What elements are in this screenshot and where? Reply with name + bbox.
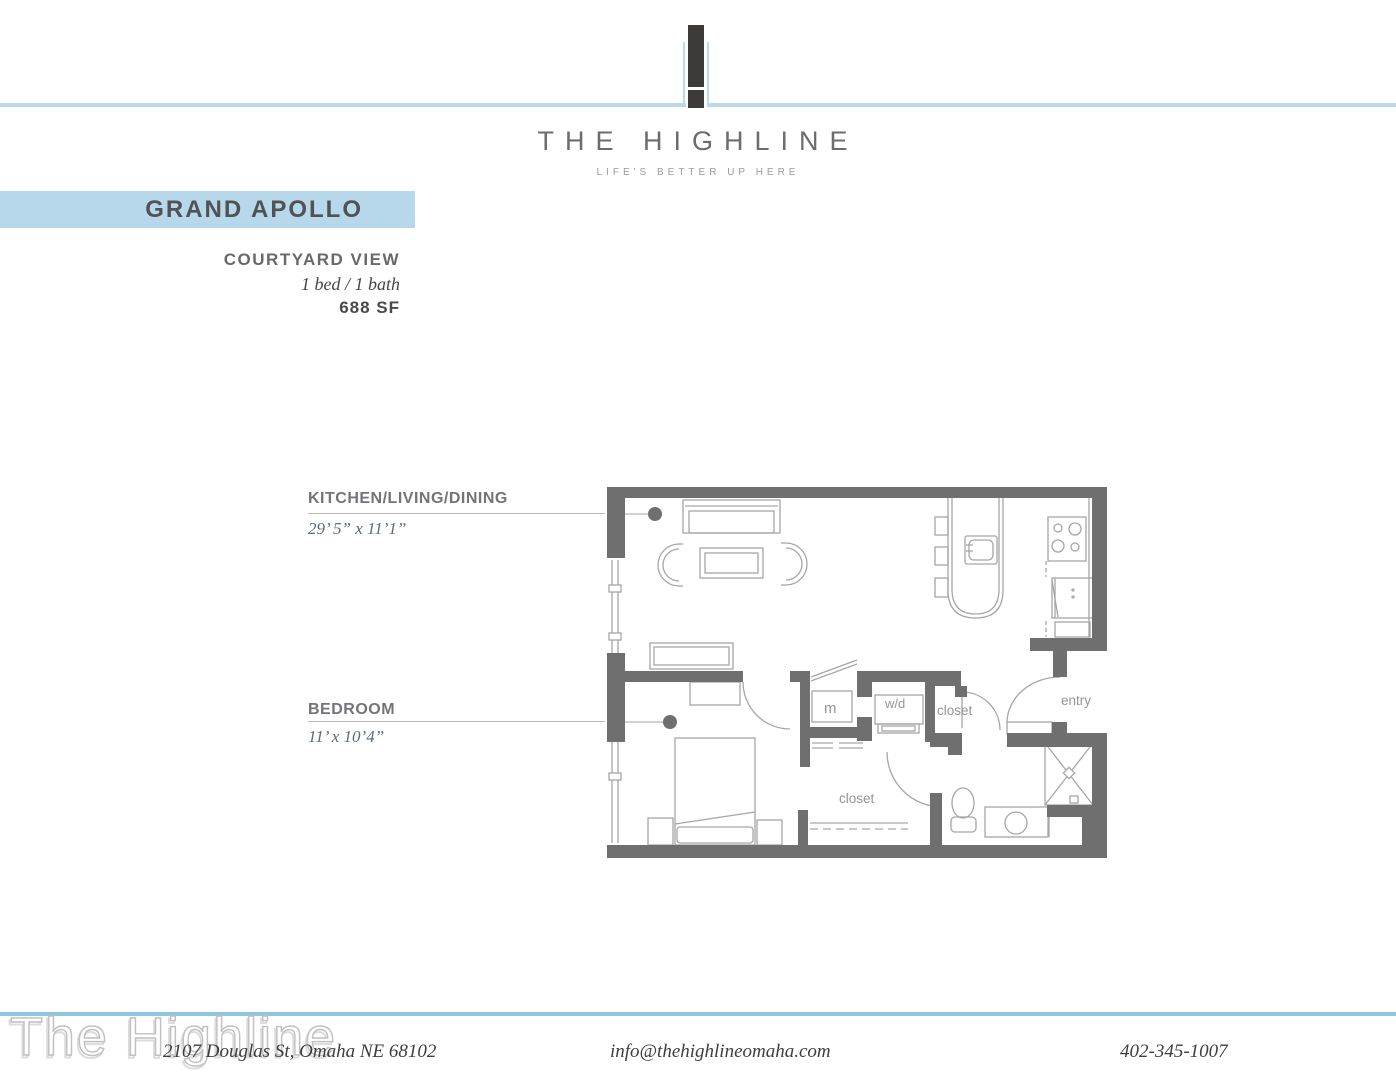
stove [1048, 517, 1086, 561]
shower [1045, 743, 1093, 805]
dresser [690, 682, 740, 705]
closet-rod [810, 823, 908, 829]
footer-phone: 402-345-1007 [1120, 1041, 1228, 1063]
unit-beds-baths: 1 bed / 1 bath [100, 274, 400, 295]
bedroom-callout-dot [663, 715, 677, 729]
footer-email: info@thehighlineomaha.com [610, 1041, 831, 1063]
walk-in-closet-label: closet [839, 791, 875, 806]
logo-mark-base-icon [688, 90, 704, 108]
coffee-table [700, 548, 763, 578]
nightstand-left [648, 818, 673, 845]
mechanical-label: m [824, 700, 837, 717]
unit-info: COURTYARD VIEW 1 bed / 1 bath 688 SF [100, 250, 400, 318]
refrigerator [1052, 578, 1094, 637]
mechanical-unit [812, 691, 863, 748]
washer-dryer-label: w/d [884, 696, 905, 711]
brand-tagline: LIFE'S BETTER UP HERE [458, 167, 938, 178]
header-rule-right [708, 103, 1396, 107]
logo-mark-icon [688, 25, 704, 87]
flyer-page: THE HIGHLINE LIFE'S BETTER UP HERE GRAND… [0, 0, 1396, 1080]
mechanical-door [811, 660, 857, 681]
kitchen-living-dining-dimensions: 29’ 5” x 11’1” [308, 519, 406, 539]
bedroom-door [743, 682, 790, 729]
kitchen-callout-dot [648, 507, 662, 521]
unit-name: GRAND APOLLO [0, 191, 363, 228]
bedroom-leader-line [308, 721, 605, 722]
bathroom-vanity [985, 807, 1049, 837]
watermark: The Highline The Highline [6, 1002, 406, 1078]
armchair-right [781, 543, 807, 585]
unit-area: 688 SF [100, 298, 400, 318]
armchair-left [658, 544, 683, 586]
footer-address: 2107 Douglas St, Omaha NE 68102 [163, 1041, 436, 1063]
nightstand-right [757, 820, 782, 845]
unit-view: COURTYARD VIEW [100, 250, 400, 270]
callout-dots [623, 514, 663, 722]
kitchen-island [948, 498, 1003, 618]
logo-flank-line-left [683, 42, 685, 107]
brand-wordmark: THE HIGHLINE [458, 126, 938, 157]
entry-label: entry [1061, 693, 1091, 708]
logo-flank-line-right [707, 42, 709, 107]
floor-plan: m w/d closet entry closet [605, 485, 1107, 858]
bed [675, 738, 755, 845]
bedroom-dimensions: 11’ x 10’4” [308, 727, 384, 747]
kitchen-leader-line [308, 513, 605, 514]
header-rule-left [0, 103, 686, 107]
coat-closet-label: closet [937, 703, 973, 718]
sofa [683, 500, 780, 533]
bedroom-label: BEDROOM [308, 701, 395, 719]
toilet [951, 788, 976, 832]
kitchen-living-dining-label: KITCHEN/LIVING/DINING [308, 490, 508, 508]
console-table [650, 643, 733, 669]
island-stools [935, 517, 948, 597]
